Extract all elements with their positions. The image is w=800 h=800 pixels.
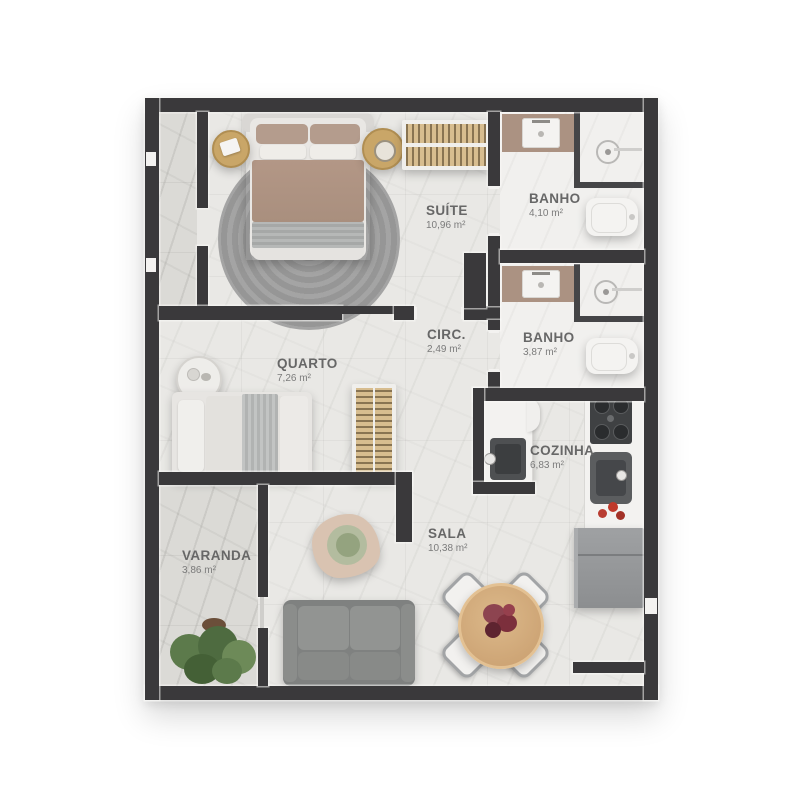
nightstand-left <box>212 130 250 168</box>
wall-island-vertical <box>473 388 484 494</box>
room-name: SUÍTE <box>426 203 468 219</box>
room-name: VARANDA <box>182 548 251 564</box>
shower-wall <box>574 112 580 188</box>
floor-plan-stage: SUÍTE 10,96 m² BANHO 4,10 m² CIRC. 2,49 … <box>0 0 800 800</box>
room-area: 3,87 m² <box>523 347 575 359</box>
quarto-single-bed <box>172 392 312 480</box>
room-area: 10,96 m² <box>426 220 468 232</box>
toilet <box>586 338 638 374</box>
shower-wall <box>574 182 644 188</box>
bed-throw-striped <box>252 222 364 248</box>
quarto-door-leaf <box>342 306 394 314</box>
decor-tray <box>374 140 396 162</box>
label-circ: CIRC. 2,49 m² <box>427 327 466 355</box>
wardrobe-hangers-column <box>375 388 392 476</box>
faucet <box>532 272 550 275</box>
wall-circ-banho <box>488 320 500 330</box>
bed-throw-striped <box>242 394 278 478</box>
cup <box>187 368 200 381</box>
wall-outer-left <box>145 98 159 700</box>
sink-basin <box>495 444 521 474</box>
wall-banho-cozinha <box>473 388 644 401</box>
wall-circ-column <box>464 253 486 308</box>
pillow <box>178 400 204 472</box>
room-area: 10,38 m² <box>428 543 467 555</box>
toilet-seat <box>591 203 627 233</box>
shower-head <box>596 140 620 164</box>
cooktop <box>590 394 632 444</box>
flower-centerpiece <box>503 604 515 616</box>
room-area: 4,10 m² <box>529 208 581 220</box>
shower-head-center <box>605 149 611 155</box>
vanity-sink <box>522 118 560 148</box>
pillow-brown <box>256 124 308 144</box>
label-sala: SALA 10,38 m² <box>428 526 467 554</box>
nightstand-right <box>362 128 404 170</box>
pillow-brown <box>310 124 360 144</box>
room-name: BANHO <box>529 191 581 207</box>
pillow-white <box>310 145 356 159</box>
suite-double-bed <box>246 112 370 260</box>
sofa-seat <box>298 606 349 650</box>
door-jamb <box>489 186 499 189</box>
label-suite: SUÍTE 10,96 m² <box>426 203 468 231</box>
dining-table <box>458 583 544 669</box>
sofa-back-cushion <box>298 652 349 680</box>
room-area: 3,86 m² <box>182 565 251 577</box>
vanity-counter <box>502 114 576 152</box>
kitchen-sink <box>590 452 632 504</box>
island-sink <box>490 438 526 480</box>
room-name: BANHO <box>523 330 575 346</box>
shower-arm <box>612 288 642 291</box>
wall-sala-stub <box>396 472 412 542</box>
sink-drain <box>538 282 544 288</box>
quarto-wardrobe <box>352 384 396 480</box>
wall-pier <box>464 306 500 320</box>
tomatoes <box>598 502 628 524</box>
wall-circ-banho-lower <box>488 372 500 388</box>
tomato <box>616 511 625 520</box>
shower-wall <box>574 264 580 322</box>
sofa-back-cushion <box>350 652 400 680</box>
wall-varanda-upper <box>258 485 268 597</box>
wall-suite-banho <box>488 112 500 186</box>
room-name: SALA <box>428 526 467 542</box>
label-quarto: QUARTO 7,26 m² <box>277 356 338 384</box>
burner <box>594 424 610 440</box>
wall-between-banhos <box>500 250 644 263</box>
entry-door-opening <box>645 598 657 614</box>
label-cozinha: COZINHA 6,83 m² <box>530 443 594 471</box>
burner <box>613 424 629 440</box>
bed-foot <box>280 396 308 476</box>
vanity-counter <box>502 266 576 302</box>
flush-button <box>629 214 635 220</box>
shower-arm <box>614 148 642 151</box>
bed-blanket <box>252 160 364 222</box>
bed-foot <box>252 248 364 260</box>
room-area: 2,49 m² <box>427 344 466 356</box>
coffee-table <box>312 514 380 578</box>
room-name: QUARTO <box>277 356 338 372</box>
room-name: COZINHA <box>530 443 594 459</box>
wall-suite-bottom-left <box>159 306 342 320</box>
sofa-arm-left <box>283 604 297 682</box>
door-jamb <box>489 233 499 236</box>
toilet <box>586 198 638 236</box>
varanda-glass-door <box>260 597 264 628</box>
toilet-seat <box>591 343 627 371</box>
door-jamb <box>414 307 417 319</box>
magazine <box>219 138 240 157</box>
label-banho-social: BANHO 3,87 m² <box>523 330 575 358</box>
wall-island-foot <box>473 482 535 494</box>
room-name: CIRC. <box>427 327 466 343</box>
sofa-seat <box>350 606 400 650</box>
faucet <box>532 120 550 123</box>
wall-outer-bottom <box>145 686 658 700</box>
suite-wardrobe <box>402 120 490 170</box>
pillow-white <box>260 145 306 159</box>
door-jamb <box>489 330 499 333</box>
sofa <box>283 600 415 686</box>
shower-head-center <box>603 289 609 295</box>
flush-button <box>629 353 635 359</box>
wall-closet-lower <box>197 246 208 306</box>
shower-head <box>594 280 618 304</box>
fridge-highlight <box>574 528 578 608</box>
vanity-sink <box>522 270 560 298</box>
wardrobe-hangers-column <box>356 388 373 476</box>
window-notch <box>146 258 156 272</box>
wall-varanda-lower <box>258 628 268 686</box>
wall-suite-banho-lower <box>488 236 500 306</box>
sink-drain <box>538 131 544 137</box>
tomato <box>608 502 618 512</box>
kitchen-faucet <box>616 470 627 481</box>
table-plant-inner <box>336 533 360 557</box>
floor-suite-closet-strip <box>159 112 197 306</box>
decor-item <box>201 373 211 381</box>
door-jamb <box>461 307 464 319</box>
burner-center <box>607 415 614 422</box>
fridge <box>574 528 644 608</box>
wall-quarto-bottom <box>159 472 412 485</box>
tomato <box>598 509 607 518</box>
sofa-arm-right <box>401 604 415 682</box>
island-faucet <box>484 453 496 465</box>
room-area: 7,26 m² <box>277 373 338 385</box>
flower-centerpiece <box>485 622 501 638</box>
wall-kitchen-ledge <box>573 662 644 673</box>
wall-closet-upper <box>197 112 208 208</box>
window-notch <box>146 152 156 166</box>
label-varanda: VARANDA 3,86 m² <box>182 548 251 576</box>
label-banho-suite: BANHO 4,10 m² <box>529 191 581 219</box>
wall-pier <box>394 306 414 320</box>
wall-outer-top <box>145 98 658 112</box>
room-area: 6,83 m² <box>530 460 594 472</box>
shower-wall <box>574 316 644 322</box>
potted-plant <box>168 616 260 688</box>
door-jamb <box>489 369 499 372</box>
wardrobe-hangers-row <box>406 147 486 166</box>
fridge-seam <box>574 554 644 556</box>
wardrobe-hangers-row <box>406 124 486 143</box>
plant-foliage <box>212 658 242 684</box>
